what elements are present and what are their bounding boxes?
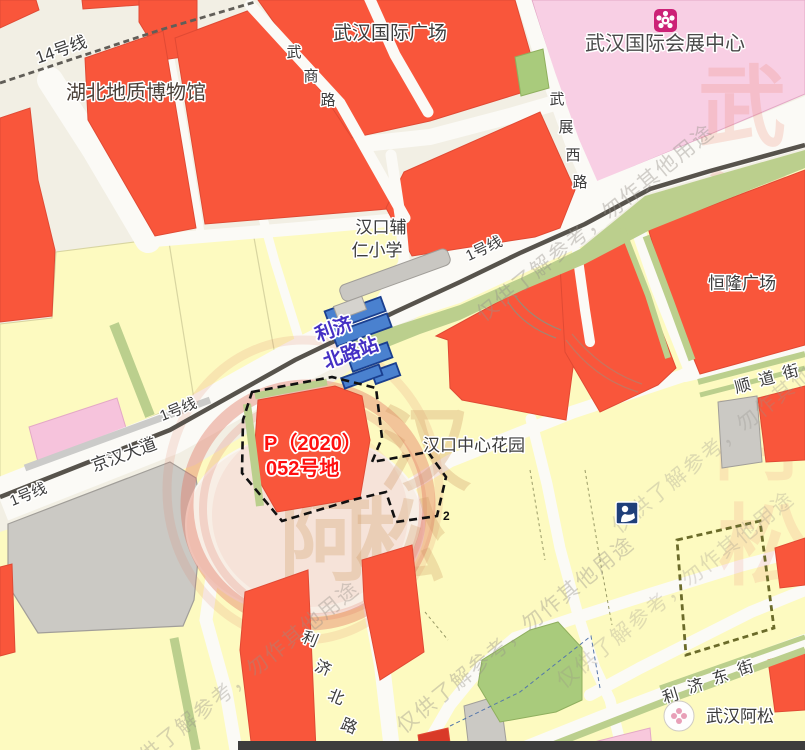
svg-text:湖北地质博物馆: 湖北地质博物馆 <box>66 81 206 104</box>
svg-text:路: 路 <box>572 174 587 191</box>
svg-text:商: 商 <box>303 68 318 85</box>
svg-text:仁小学: 仁小学 <box>352 241 403 260</box>
svg-text:武: 武 <box>549 91 564 108</box>
svg-text:武汉国际广场: 武汉国际广场 <box>333 22 447 44</box>
svg-text:武汉国际会展中心: 武汉国际会展中心 <box>585 32 745 55</box>
svg-text:展: 展 <box>558 119 573 136</box>
svg-text:2: 2 <box>443 509 450 523</box>
svg-text:武: 武 <box>286 44 301 61</box>
svg-text:汉口辅: 汉口辅 <box>356 218 407 237</box>
svg-text:汉口中心花园: 汉口中心花园 <box>423 436 525 455</box>
svg-text:路: 路 <box>320 92 335 109</box>
svg-text:西: 西 <box>565 147 580 164</box>
svg-text:武汉阿松: 武汉阿松 <box>706 707 774 726</box>
svg-text:恒隆广场: 恒隆广场 <box>708 274 776 293</box>
svg-text:052号地: 052号地 <box>266 457 339 480</box>
svg-text:P（2020）: P（2020） <box>264 432 362 455</box>
